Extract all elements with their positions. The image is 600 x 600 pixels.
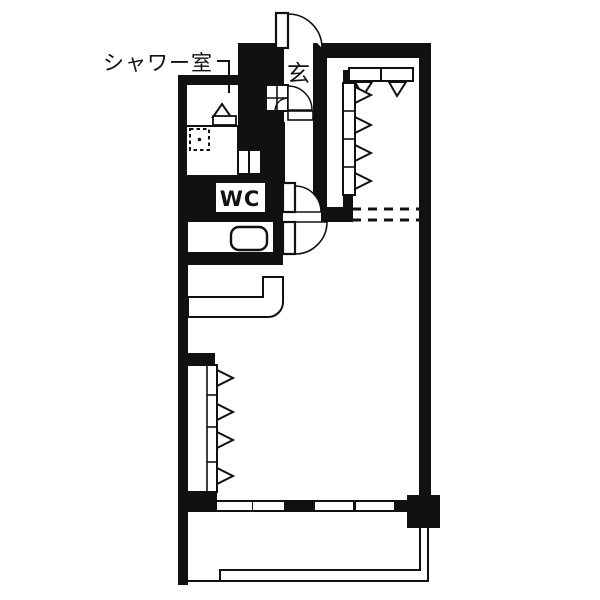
shower-shelf [213,116,236,125]
closet2-triangle-2 [217,404,233,420]
closet-door-triangle-down-2 [389,82,406,96]
wall-closet-stub-bottom [343,195,353,207]
floor-plan-drawing: シャワー室 玄 WC [0,0,600,600]
balcony [188,528,428,581]
wall-top [313,43,431,58]
closet-shelf-1 [349,68,381,81]
entrance-door-leaf [276,13,288,48]
kitchen-counter [188,277,283,317]
washroom-door-panel-1 [238,150,249,174]
entrance-label: 玄 [287,61,310,87]
closet-door-triangle-3 [355,145,371,161]
closet2-triangle-1 [217,370,233,386]
main-room-doorway [283,212,321,222]
shower-room-label: シャワー室 [103,51,213,75]
closet2-triangle-3 [217,432,233,448]
closet2-triangle-4 [217,468,233,484]
wall-closet2-stub-top [178,353,215,365]
pillar [407,495,440,528]
dashed-boundary [352,209,419,220]
closet-top-right [343,68,413,195]
toilet [231,227,267,250]
window-slot-1 [217,502,252,510]
washing-machine-dot [198,138,202,142]
balcony-rail-outer [188,528,428,581]
closet-door-triangle-2 [355,117,371,133]
main-room-door-leaf [283,222,295,254]
balcony-rail-inner [220,528,420,581]
closet2-body [187,365,217,492]
wc-door-leaf [283,183,295,212]
washroom-door-panel-2 [249,150,261,174]
entrance-step [288,111,313,120]
window-slot-2 [253,502,284,510]
wc-label: WC [220,187,261,211]
window-slot-3 [315,502,353,510]
wall-right [419,48,431,500]
closet-door-triangle-4 [355,173,371,189]
entrance-door [276,13,322,48]
floor-plan: シャワー室 玄 WC [0,0,600,600]
window-slot-4 [356,502,394,510]
closet-bottom-left [187,365,233,492]
closet-shelf-2 [381,68,413,81]
entrance-door-arc [288,14,322,48]
